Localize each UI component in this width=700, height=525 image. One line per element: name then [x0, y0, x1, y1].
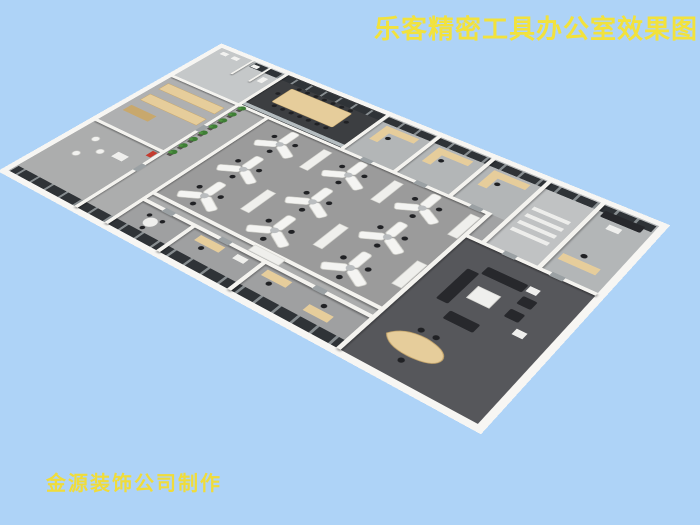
- office-3d-scene: [0, 43, 670, 434]
- floorplan-svg: [0, 43, 670, 434]
- render-title: 乐客精密工具办公室效果图: [374, 9, 696, 46]
- render-image: 乐客精密工具办公室效果图 金源装饰公司制作: [0, 0, 700, 525]
- studio-watermark: 金源装饰公司制作: [46, 467, 222, 496]
